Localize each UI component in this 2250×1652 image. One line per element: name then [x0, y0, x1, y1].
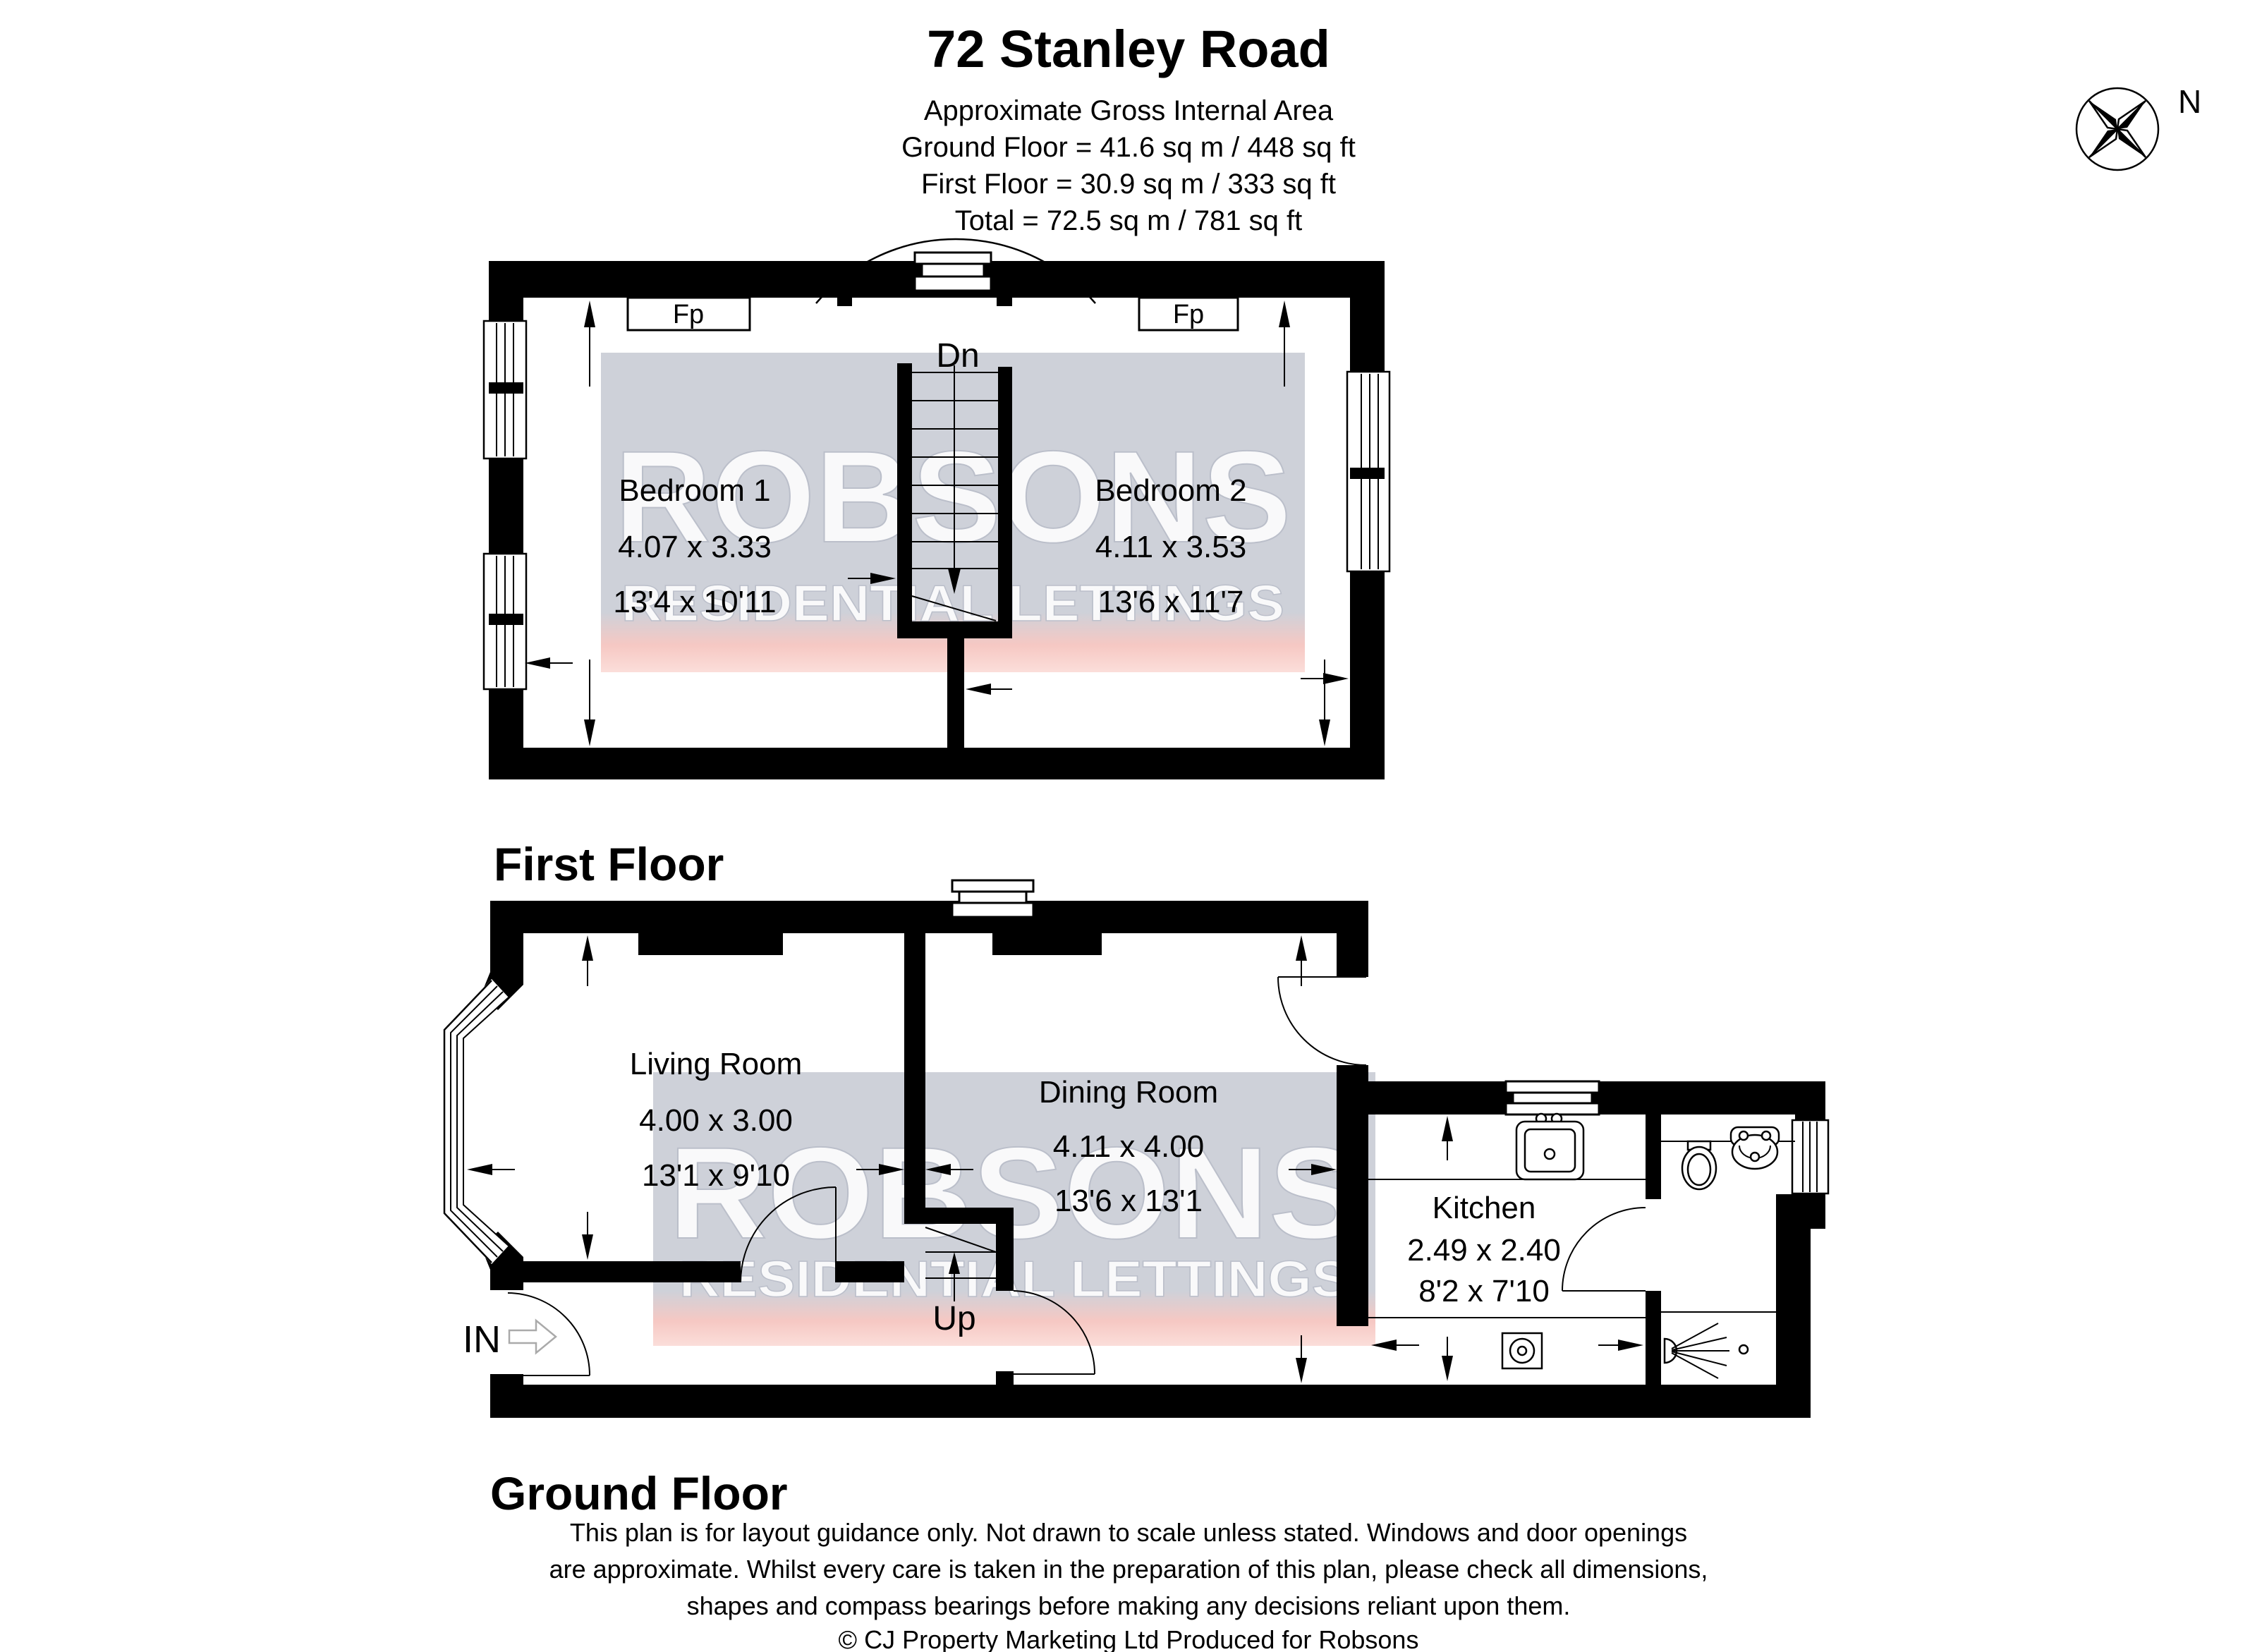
- fireplace-left: Fp: [628, 298, 750, 330]
- bedroom-1-name: Bedroom 1: [619, 473, 770, 508]
- stairs-down-label: Dn: [936, 337, 979, 375]
- fireplace-right-label: Fp: [1173, 300, 1204, 329]
- header-subtitle: Approximate Gross Internal Area: [924, 95, 1334, 126]
- window-left-2: [484, 554, 526, 689]
- living-room-metric: 4.00 x 3.00: [639, 1103, 793, 1138]
- dining-room-metric: 4.11 x 4.00: [1053, 1129, 1204, 1164]
- entrance-label: IN: [463, 1318, 501, 1361]
- first-floor-title: First Floor: [494, 838, 724, 890]
- ground-floor-title: Ground Floor: [490, 1467, 788, 1519]
- bedroom-2-label: Bedroom 2 4.11 x 3.53 13'6 x 11'7: [1095, 473, 1246, 619]
- fireplace-left-label: Fp: [673, 300, 704, 329]
- chimney-stack-icon: [915, 253, 991, 291]
- toilet-icon: [1682, 1141, 1716, 1189]
- chimney-stack-icon: [952, 880, 1033, 917]
- area-first: First Floor = 30.9 sq m / 333 sq ft: [921, 169, 1336, 200]
- dining-room-imperial: 13'6 x 13'1: [1054, 1184, 1203, 1218]
- floorplan-figure: 72 Stanley Road Approximate Gross Intern…: [0, 0, 2250, 1652]
- disclaimer-line-1: This plan is for layout guidance only. N…: [570, 1518, 1687, 1547]
- copyright-line: © CJ Property Marketing Ltd Produced for…: [839, 1625, 1419, 1652]
- dining-room-name: Dining Room: [1039, 1075, 1218, 1110]
- basin-icon: [1731, 1127, 1779, 1169]
- stairs-up-label: Up: [932, 1300, 975, 1337]
- living-room-label: Living Room 4.00 x 3.00 13'1 x 9'10: [630, 1047, 803, 1193]
- area-total: Total = 72.5 sq m / 781 sq ft: [955, 205, 1303, 236]
- living-room-imperial: 13'1 x 9'10: [642, 1158, 790, 1193]
- compass-north-label: N: [2178, 83, 2201, 120]
- bedroom-1-imperial: 13'4 x 10'11: [613, 585, 776, 619]
- watermark-tagline: RESIDENTIAL LETTINGS: [679, 1251, 1349, 1308]
- bedroom-2-metric: 4.11 x 3.53: [1095, 530, 1246, 564]
- kitchen-metric: 2.49 x 2.40: [1407, 1233, 1561, 1268]
- bedroom-2-imperial: 13'6 x 11'7: [1098, 585, 1244, 619]
- watermark-brand: ROBSONS: [669, 1121, 1360, 1266]
- kitchen-imperial: 8'2 x 7'10: [1418, 1274, 1550, 1308]
- cooker-icon: [1502, 1333, 1542, 1368]
- kitchen-window-stack-icon: [1506, 1081, 1599, 1115]
- bathroom-window: [1792, 1120, 1828, 1194]
- kitchen-name: Kitchen: [1433, 1191, 1536, 1225]
- bedroom-1-label: Bedroom 1 4.07 x 3.33 13'4 x 10'11: [613, 473, 776, 619]
- area-ground: Ground Floor = 41.6 sq m / 448 sq ft: [901, 132, 1356, 163]
- window-left-1: [484, 321, 526, 458]
- page-title: 72 Stanley Road: [927, 20, 1330, 78]
- bedroom-1-metric: 4.07 x 3.33: [618, 530, 772, 564]
- living-room-name: Living Room: [630, 1047, 803, 1081]
- floorplan-page: 72 Stanley Road Approximate Gross Intern…: [0, 0, 2250, 1652]
- kitchen-sink-icon: [1516, 1114, 1583, 1179]
- dining-room-label: Dining Room 4.11 x 4.00 13'6 x 13'1: [1039, 1075, 1218, 1218]
- window-right: [1347, 372, 1389, 571]
- disclaimer-line-3: shapes and compass bearings before makin…: [687, 1591, 1571, 1620]
- fireplace-right: Fp: [1139, 298, 1238, 330]
- disclaimer-line-2: are approximate. Whilst every care is ta…: [549, 1555, 1708, 1584]
- bedroom-2-name: Bedroom 2: [1095, 473, 1246, 508]
